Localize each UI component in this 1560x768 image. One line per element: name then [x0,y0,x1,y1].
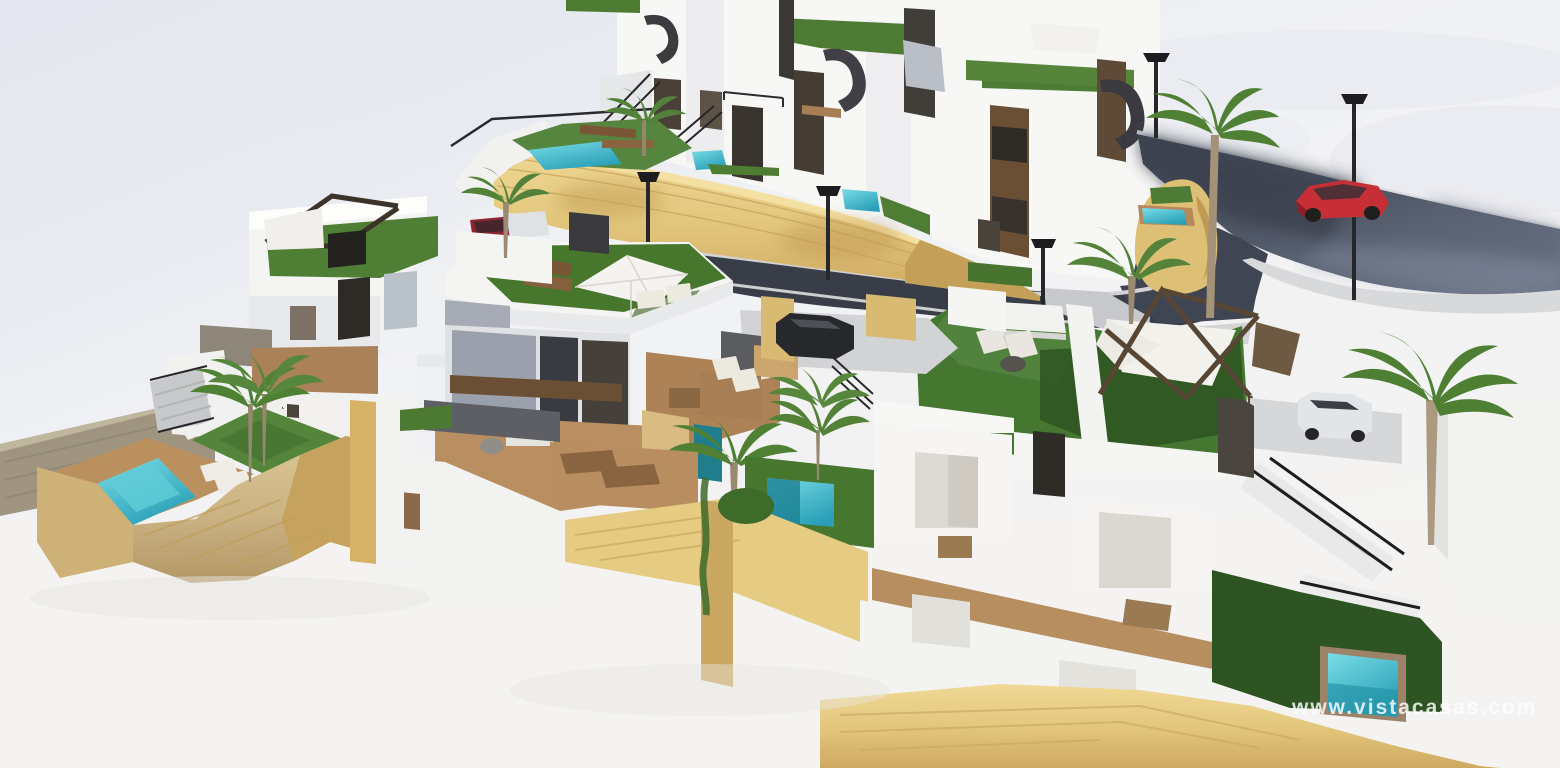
svg-text:www.vistacasas.com: www.vistacasas.com [1291,696,1537,719]
